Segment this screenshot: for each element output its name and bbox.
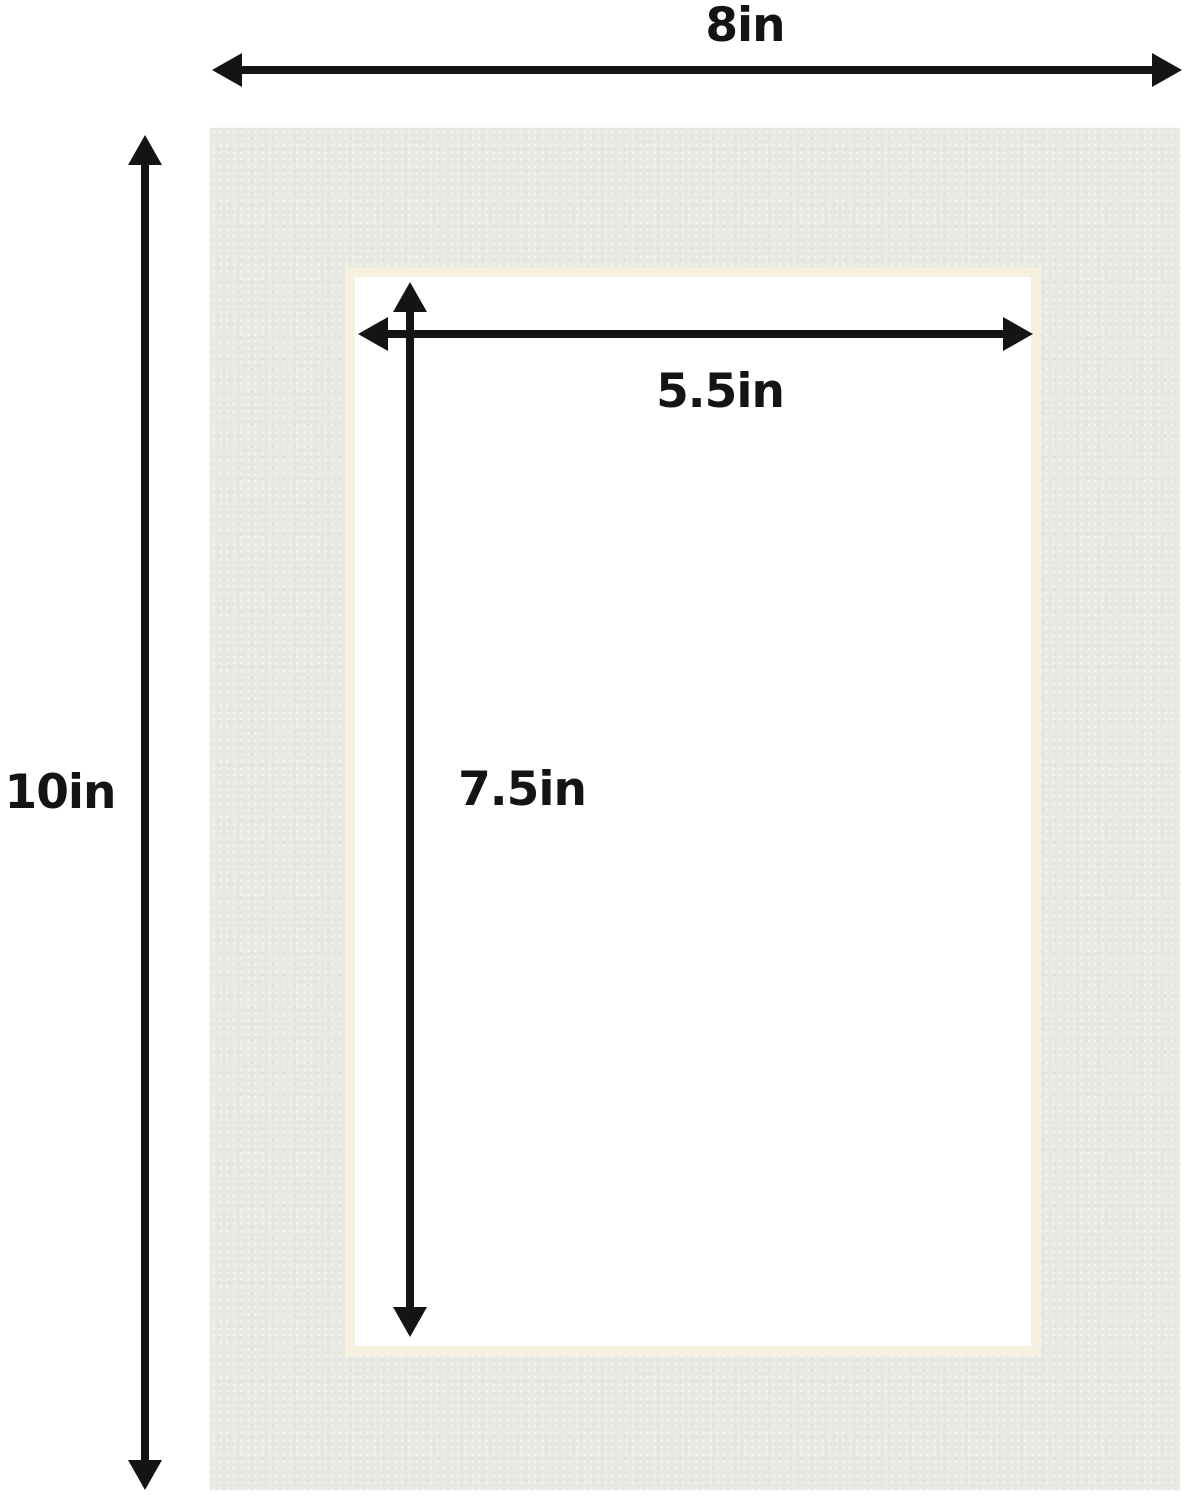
arrowhead-left-icon (358, 317, 388, 351)
arrowhead-right-icon (1152, 53, 1182, 87)
arrowhead-down-icon (393, 1307, 427, 1337)
dimension-line (386, 330, 1005, 338)
arrowhead-down-icon (128, 1460, 162, 1490)
dimension-line (141, 163, 149, 1462)
dimension-line (406, 310, 414, 1309)
dimension-label-window-height: 7.5in (417, 766, 627, 813)
arrowhead-up-icon (393, 282, 427, 312)
arrowhead-up-icon (128, 135, 162, 165)
diagram-canvas: 8in 10in 5.5in 7.5in (0, 0, 1190, 1500)
dimension-label-outer-width: 8in (595, 2, 895, 49)
arrowhead-right-icon (1003, 317, 1033, 351)
dimension-label-window-width: 5.5in (570, 368, 870, 415)
dimension-label-outer-height: 10in (0, 769, 130, 816)
dimension-line (240, 66, 1154, 74)
arrowhead-left-icon (212, 53, 242, 87)
